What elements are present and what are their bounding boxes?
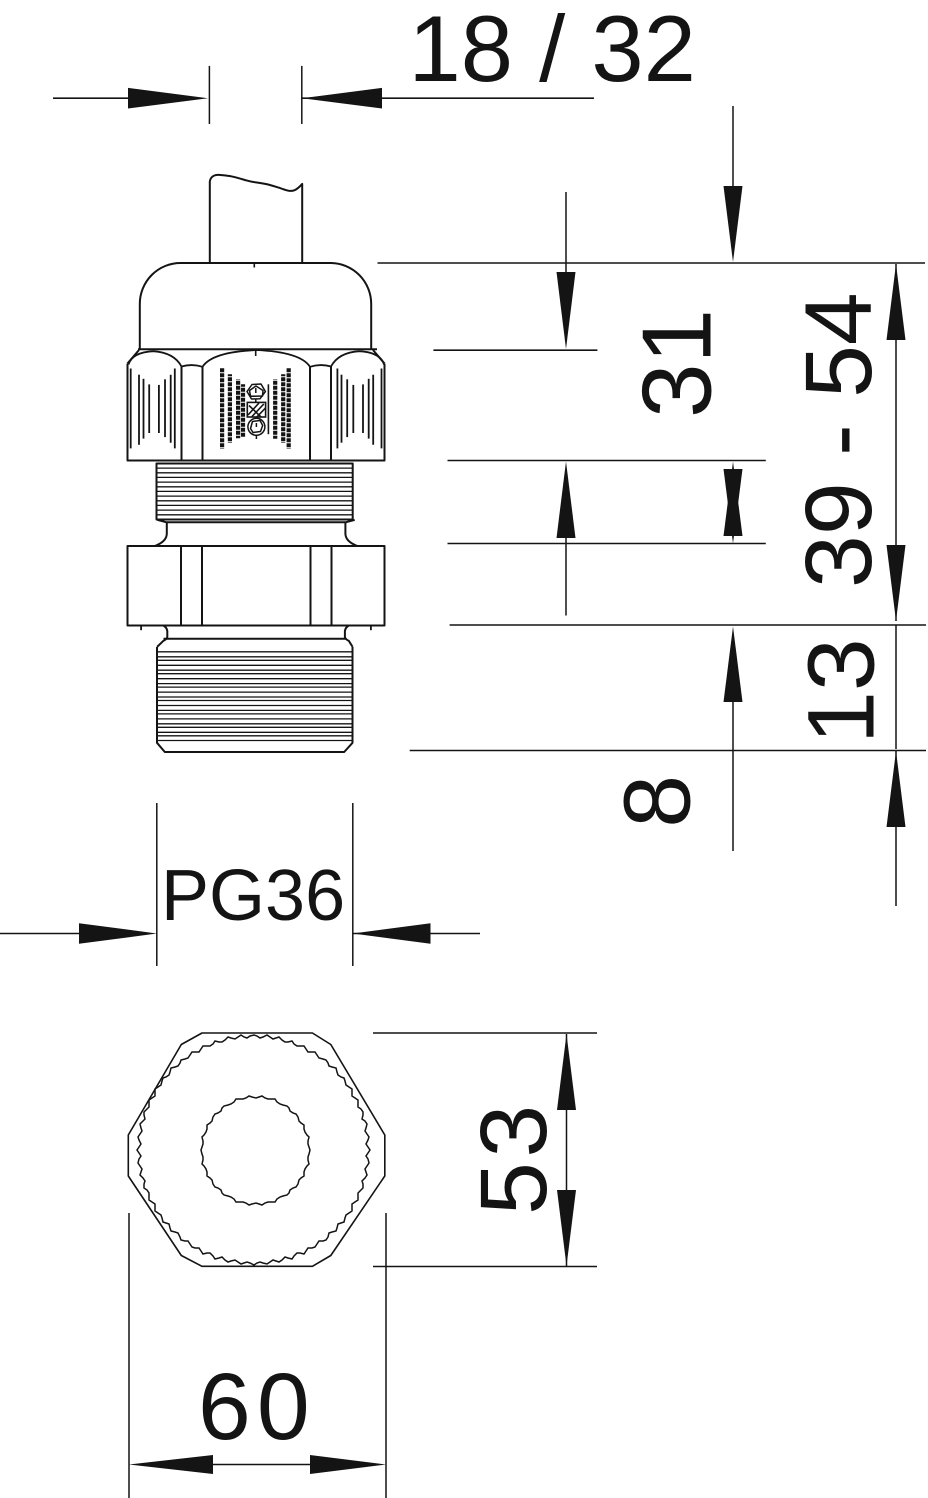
svg-text:39 - 54: 39 - 54 [786,292,892,588]
svg-text:18 / 32: 18 / 32 [409,0,696,101]
svg-text:PG36: PG36 [161,856,345,936]
svg-text:13: 13 [789,638,895,744]
svg-text:53: 53 [461,1100,567,1215]
svg-text:60: 60 [198,1354,316,1460]
svg-text:31: 31 [622,309,732,418]
svg-text:8: 8 [604,775,710,828]
